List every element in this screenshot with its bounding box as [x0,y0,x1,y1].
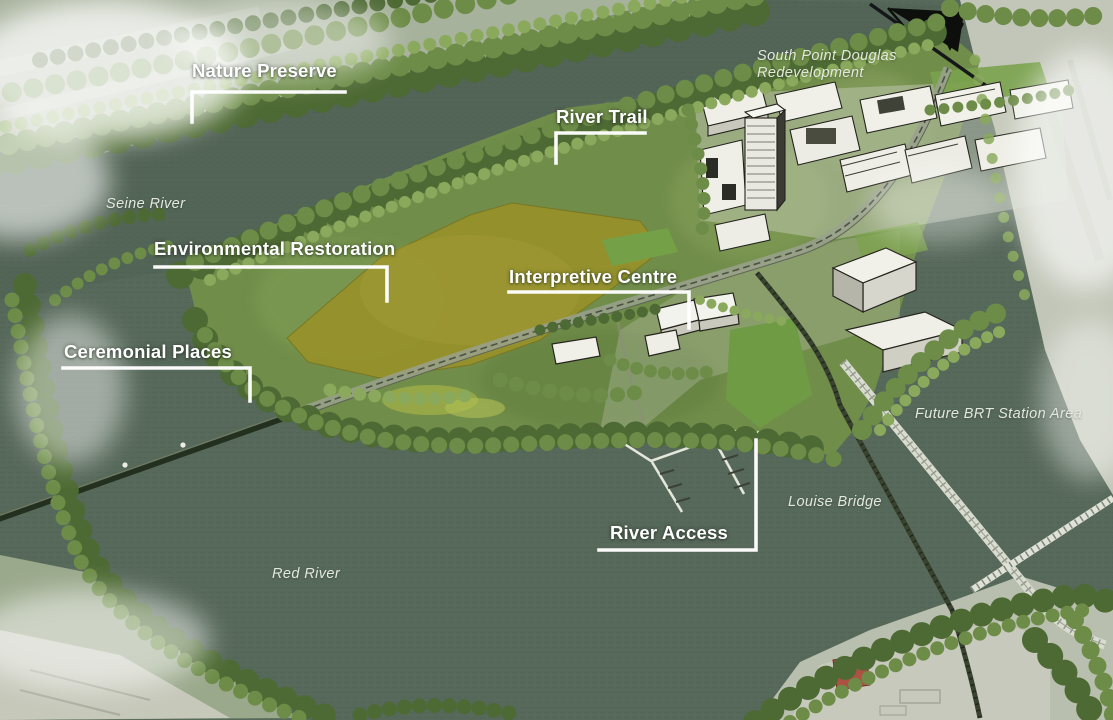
label-seine-river: Seine River [106,196,185,213]
boat [180,442,185,447]
label-south-point-douglas-line1: South Point Douglas [757,48,897,65]
label-south-point-douglas-redevelopment: South Point Douglas Redevelopment [757,48,897,82]
label-river-access: River Access [610,522,728,544]
boat [122,462,127,467]
label-river-trail: River Trail [556,106,648,128]
label-ceremonial-places: Ceremonial Places [64,341,232,363]
site-plan-map: Nature Preserve River Trail Environmenta… [0,0,1113,720]
label-interpretive-centre: Interpretive Centre [509,266,677,288]
label-south-point-douglas-line2: Redevelopment [757,65,897,82]
label-environmental-restoration: Environmental Restoration [154,238,395,260]
tower-building [745,104,785,210]
label-red-river: Red River [272,566,340,583]
label-nature-preserve: Nature Preserve [192,60,337,82]
label-future-brt-station: Future BRT Station Area [915,406,1082,423]
label-louise-bridge: Louise Bridge [788,494,882,511]
